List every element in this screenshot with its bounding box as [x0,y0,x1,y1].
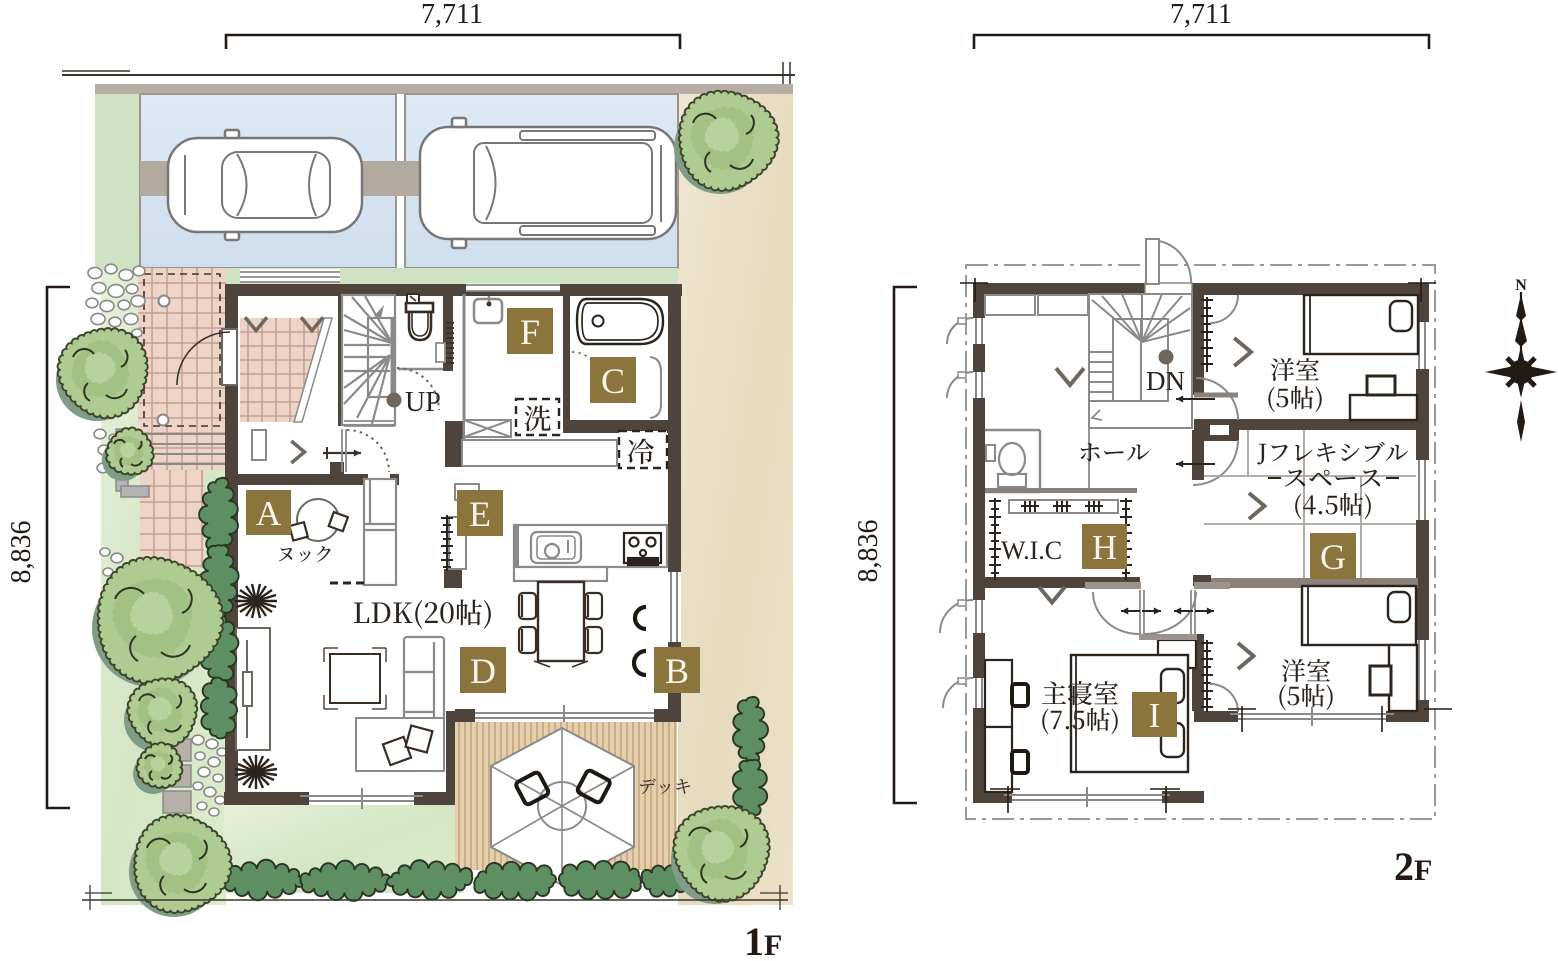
svg-text:1F: 1F [744,919,782,961]
svg-text:DN: DN [1146,366,1185,396]
svg-text:2F: 2F [1394,844,1432,889]
svg-text:7,711: 7,711 [421,0,483,30]
svg-text:E: E [469,494,491,534]
svg-text:8,836: 8,836 [6,521,37,584]
svg-text:G: G [1320,537,1346,577]
svg-text:B: B [665,651,689,691]
svg-text:D: D [470,651,496,691]
svg-text:W.I.C: W.I.C [1001,536,1062,565]
svg-text:C: C [601,361,625,401]
svg-text:8,836: 8,836 [853,520,884,583]
svg-text:F: F [520,312,540,352]
svg-text:I: I [1149,696,1161,735]
svg-text:N: N [1515,277,1527,294]
svg-text:7,711: 7,711 [1170,0,1232,30]
svg-text:H: H [1092,528,1117,567]
svg-text:A: A [256,494,282,533]
